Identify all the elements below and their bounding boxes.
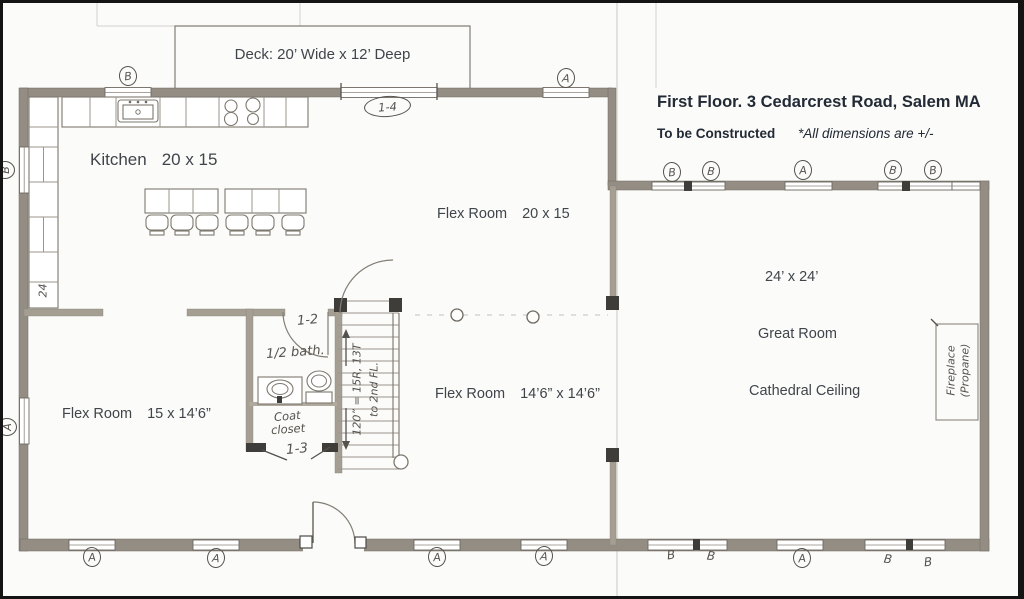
room-label-flex-top: Flex Room20 x 15 [437, 206, 570, 222]
room-name: Flex Room [437, 206, 507, 222]
greatroom-dims: 24’ x 24’ [765, 269, 818, 285]
greatroom-name: Great Room [758, 326, 837, 342]
kitchen-counter [62, 97, 308, 127]
room-label-flex-left: Flex Room15 x 14’6” [62, 406, 211, 422]
door-label-1-4-text: 1-4 [378, 99, 398, 114]
kitchen-wall-cabinets [29, 97, 58, 308]
kitchen-island [145, 189, 306, 213]
room-dims: 20 x 15 [522, 206, 570, 222]
room-dims: 15 x 14’6” [147, 406, 211, 422]
deck-label: Deck: 20’ Wide x 12’ Deep [175, 46, 470, 63]
stairs-note-line2: to 2nd FL. [368, 355, 381, 425]
interior-walls [24, 186, 619, 545]
fireplace-label-line2: (Propane) [959, 335, 972, 407]
island-stools [146, 215, 304, 235]
support-columns [415, 309, 608, 323]
coat-closet-label-line2: closet [271, 421, 306, 437]
door-label-1-2: 1-2 [296, 312, 318, 329]
stairs-note-line1: 120” = 15R, 13T [351, 335, 364, 445]
room-name: Flex Room [435, 386, 505, 402]
floorplan-canvas: Deck: 20’ Wide x 12’ Deep First Floor. 3… [0, 0, 1024, 599]
room-name: Flex Room [62, 406, 132, 422]
door-label-1-3: 1-3 [285, 440, 308, 458]
room-dims: 14’6” x 14’6” [520, 386, 600, 402]
room-label-flex-mid: Flex Room14’6” x 14’6” [435, 386, 600, 402]
plan-title: First Floor. 3 Cedarcrest Road, Salem MA [657, 93, 981, 112]
greatroom-ceiling-note: Cathedral Ceiling [749, 383, 860, 399]
room-label-kitchen: Kitchen20 x 15 [90, 150, 217, 170]
plan-subtitle-note: *All dimensions are +/- [798, 126, 933, 141]
windows-greatroom-top [652, 181, 980, 191]
floorplan-drawing [0, 0, 1024, 599]
bath-vanity [258, 377, 302, 404]
fireplace-label-line1: Fireplace [945, 335, 958, 407]
room-name: Kitchen [90, 150, 147, 169]
plan-subtitle-status: To be Constructed [657, 126, 775, 141]
bath-toilet [306, 371, 332, 403]
plan-subtitle: To be Constructed *All dimensions are +/… [657, 126, 933, 141]
kitchen-sink [118, 100, 158, 122]
left-wall-dimension: 24 [37, 284, 50, 298]
room-dims: 20 x 15 [162, 150, 218, 169]
